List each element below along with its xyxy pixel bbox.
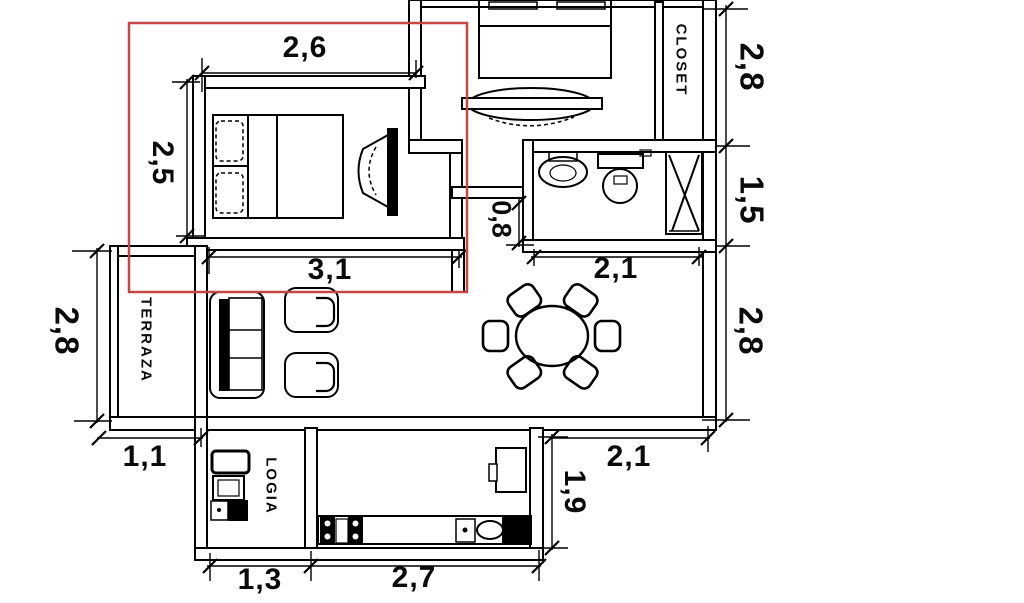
dim-logia-bottom: 1,3 <box>238 565 283 595</box>
floorplan-page: 2,6 2,5 3,1 0,8 2,8 1,5 2,1 2,8 2,8 1,1 … <box>0 0 1024 603</box>
dim-hall: 0,8 <box>488 200 515 238</box>
dim-dining-right: 2,8 <box>735 307 768 356</box>
tv-icon <box>359 129 398 215</box>
dim-dining-top: 2,1 <box>594 254 639 284</box>
dim-dining-bottom: 2,1 <box>607 442 652 472</box>
dim-bath-right: 1,5 <box>736 176 769 225</box>
dim-bedroom-left: 2,5 <box>147 141 177 186</box>
dim-terraza-bottom: 1,1 <box>123 442 168 472</box>
stove-icon <box>321 518 362 543</box>
bed2-icon <box>479 0 611 78</box>
dim-closet-right: 2,8 <box>736 43 769 92</box>
dining-chair-icon <box>595 321 620 351</box>
dining-chair-icon <box>505 282 544 320</box>
bathroom-sink-icon <box>539 152 587 187</box>
armchair-icon <box>285 353 338 397</box>
dining-chair-icon <box>561 282 600 320</box>
toilet-icon <box>598 150 651 203</box>
sofa-icon <box>210 292 264 398</box>
room-label-terraza: TERRAZA <box>139 297 154 383</box>
dining-chair-icon <box>483 321 508 351</box>
dim-kitchen-bottom: 2,7 <box>392 563 437 593</box>
dressing-table-icon <box>462 88 602 126</box>
dim-terraza-left: 2,8 <box>51 307 84 356</box>
dim-kitchen-right: 1,9 <box>559 470 589 515</box>
dim-bedroom-bottom: 3,1 <box>308 255 353 285</box>
shower-icon <box>666 152 702 234</box>
room-label-logia: LOGIA <box>264 457 279 515</box>
kitchen-sink-icon <box>456 519 503 542</box>
dining-chair-icon <box>561 354 600 392</box>
dining-chair-icon <box>505 354 544 392</box>
dining-chairs <box>483 282 620 392</box>
armchair-icon <box>285 288 338 332</box>
room-label-closet: CLOSET <box>674 24 689 97</box>
dim-bedroom-top: 2,6 <box>283 33 328 63</box>
washing-machine-icon <box>211 451 249 520</box>
bed-icon <box>213 115 343 218</box>
fridge-icon <box>489 448 526 492</box>
